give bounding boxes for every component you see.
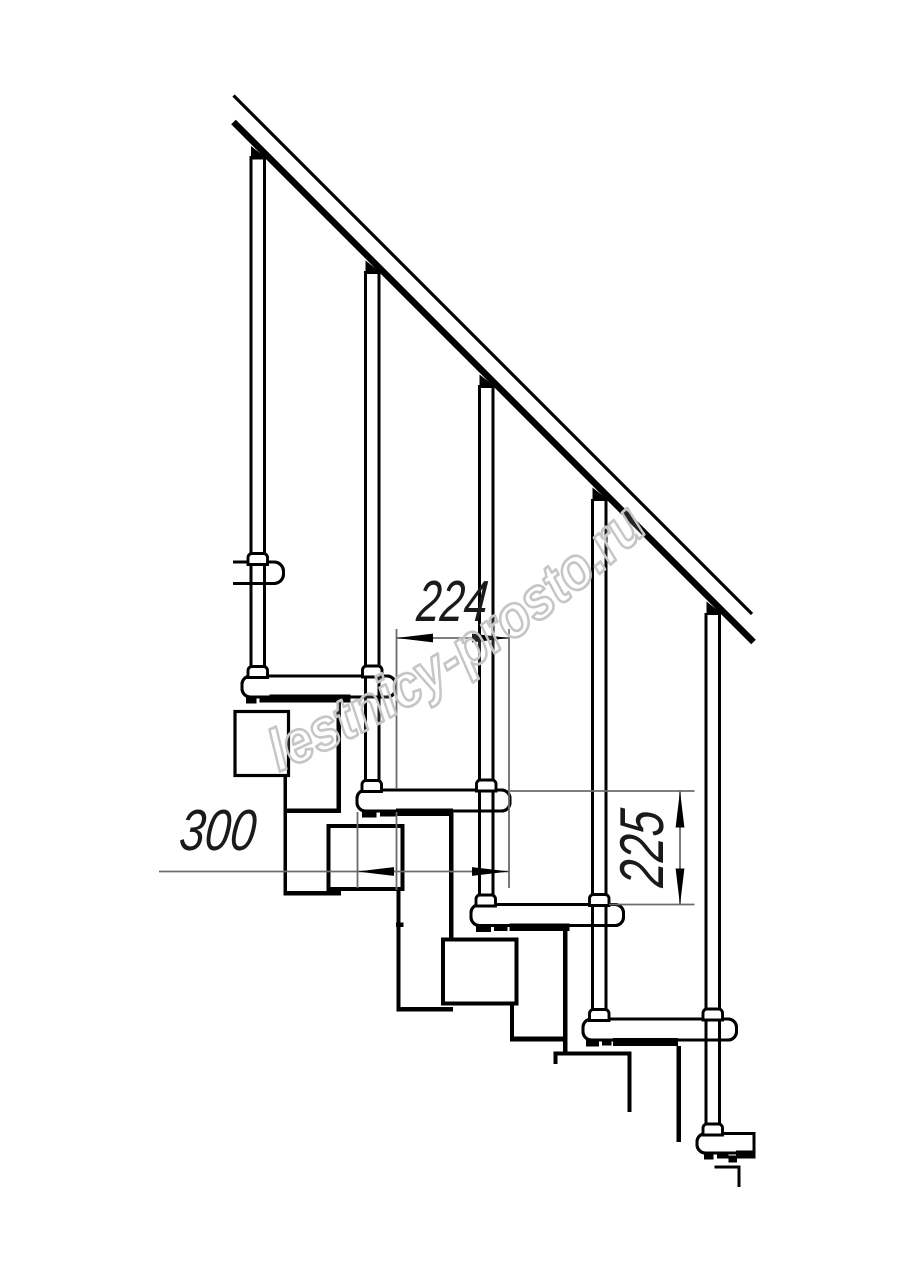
svg-text:225: 225 xyxy=(608,806,677,890)
svg-text:300: 300 xyxy=(177,798,260,863)
